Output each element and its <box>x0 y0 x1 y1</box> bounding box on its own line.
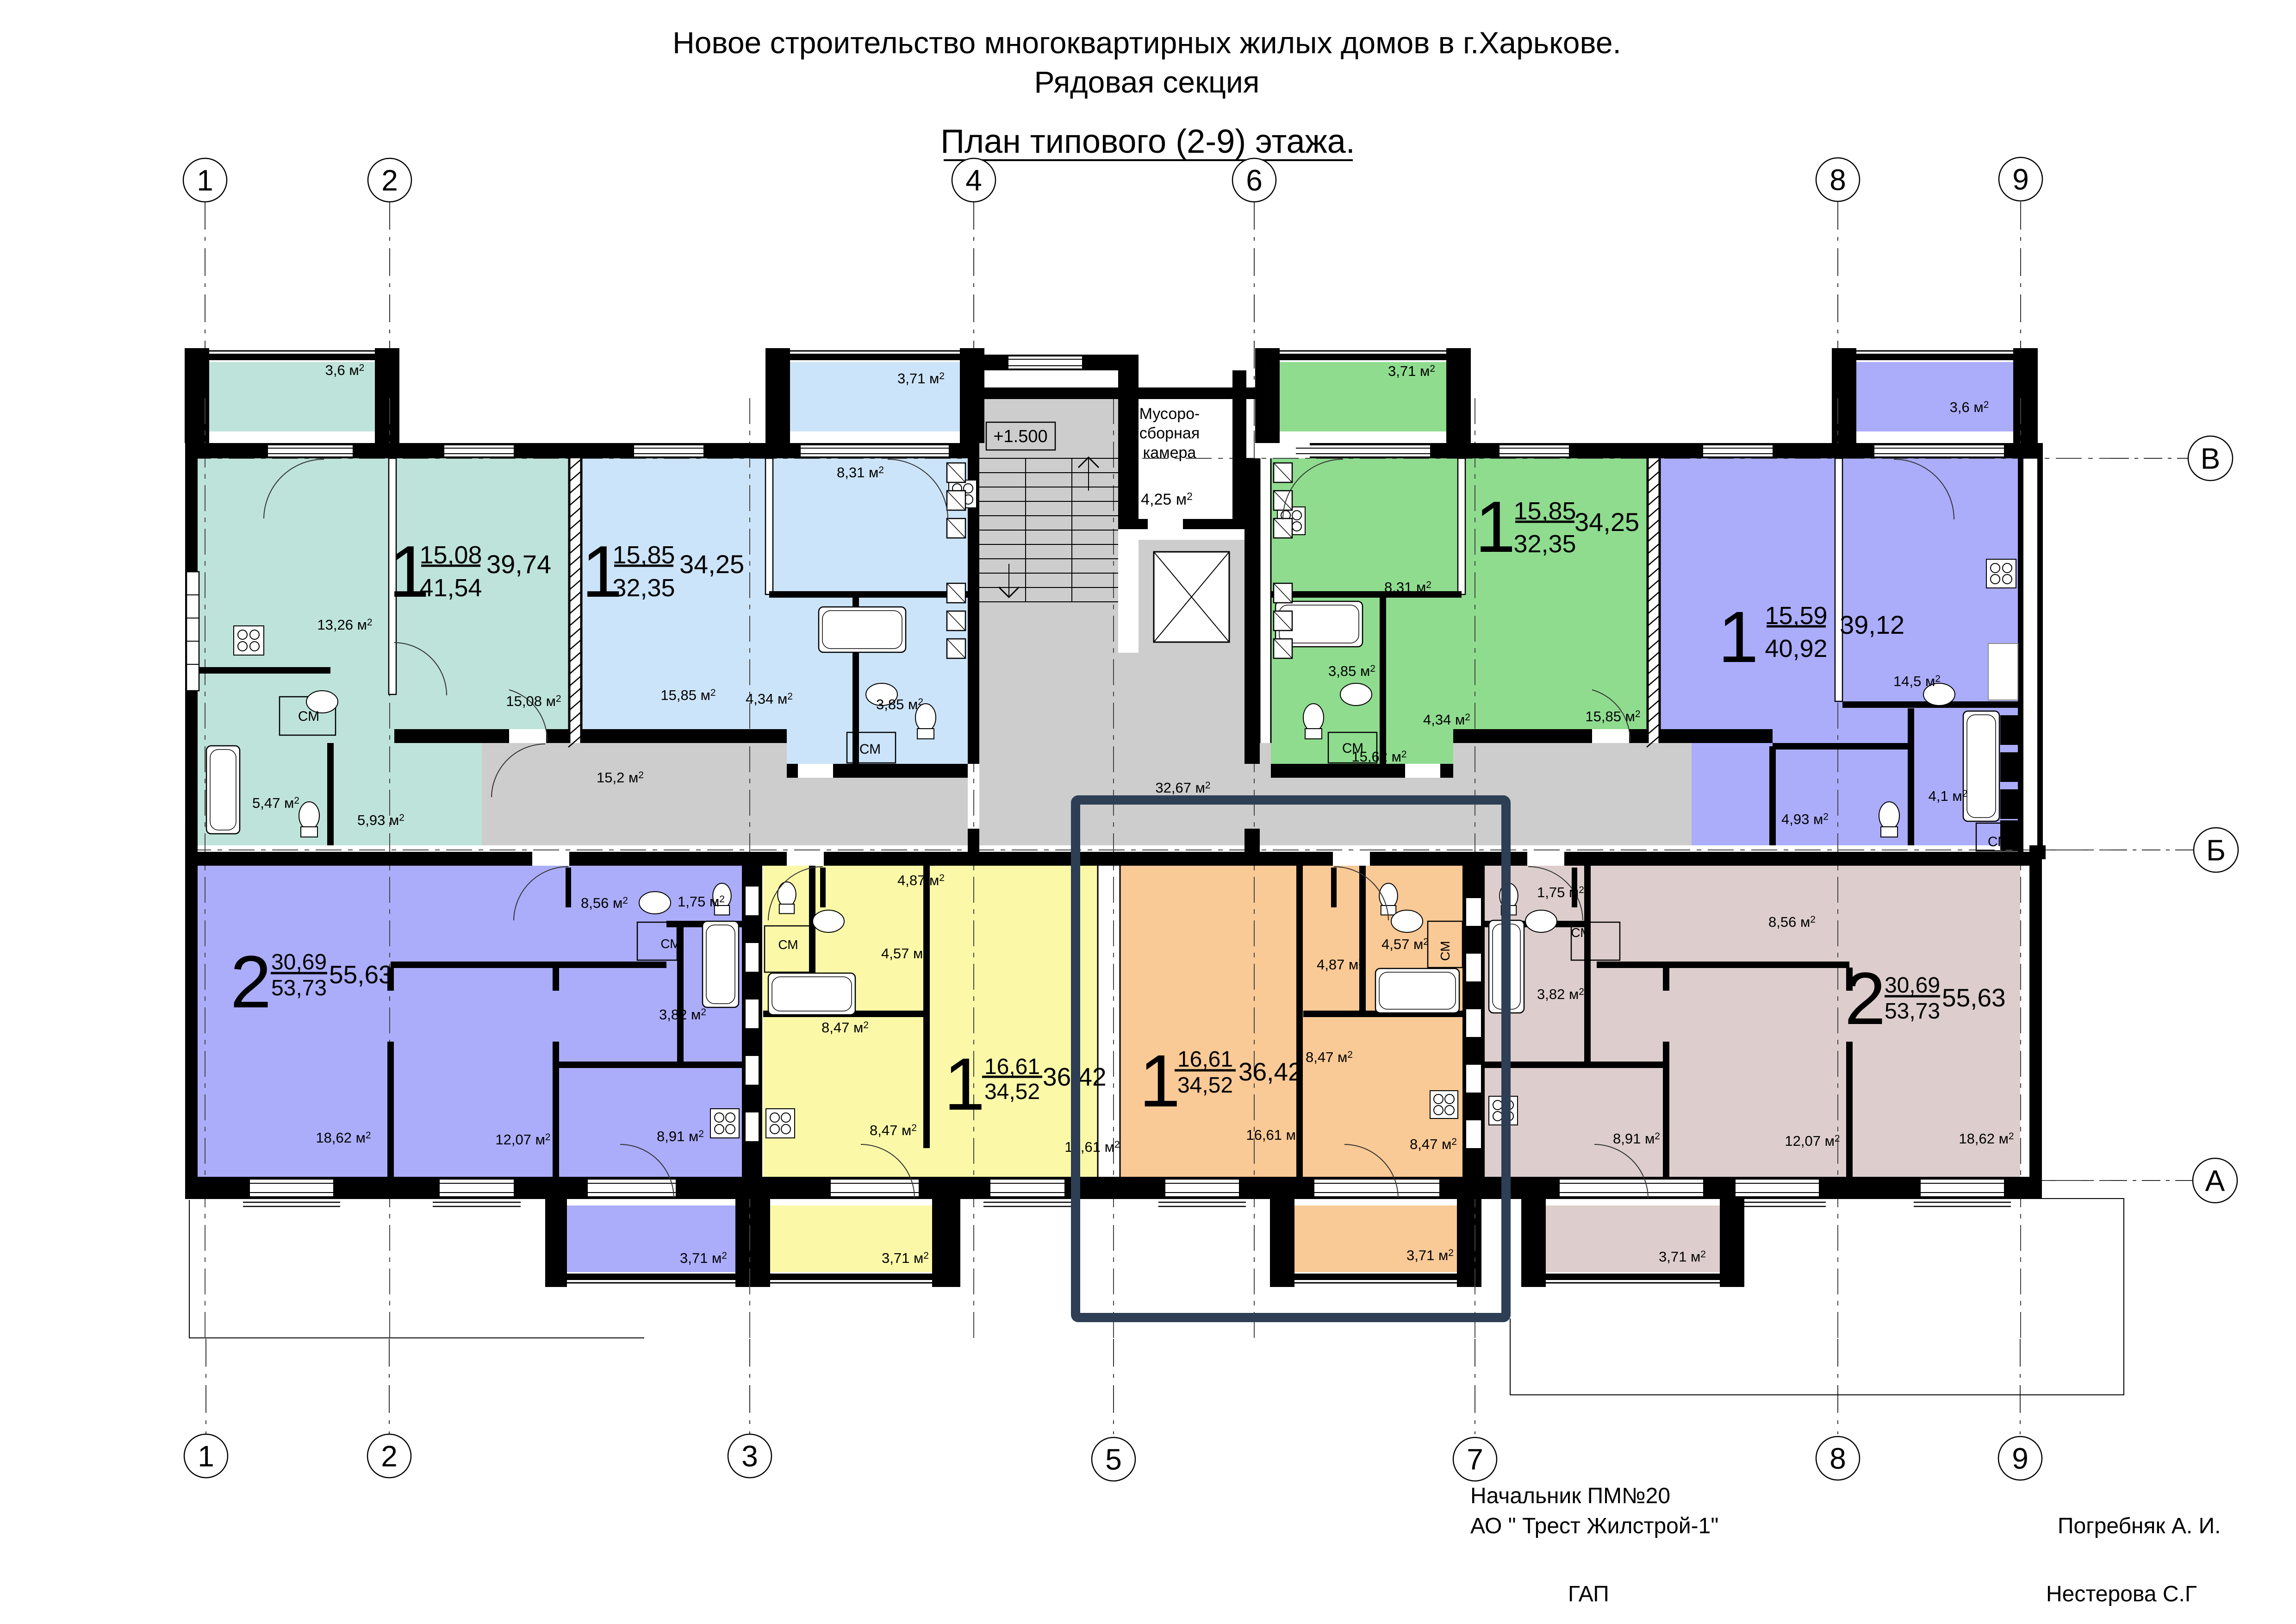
svg-text:Начальник ПМ№20: Начальник ПМ№20 <box>1470 1484 1670 1508</box>
svg-text:36,42: 36,42 <box>1238 1057 1302 1086</box>
svg-text:4,34 м2: 4,34 м2 <box>1423 712 1470 728</box>
svg-text:15,59 м2: 15,59 м2 <box>1665 728 1720 744</box>
svg-text:30,69: 30,69 <box>1885 973 1940 998</box>
svg-text:8,91 м2: 8,91 м2 <box>1613 1131 1660 1147</box>
svg-text:1,75 м2: 1,75 м2 <box>678 893 725 910</box>
svg-text:53,73: 53,73 <box>271 976 327 1000</box>
svg-text:2: 2 <box>381 1440 398 1473</box>
svg-text:3,71 м2: 3,71 м2 <box>1659 1249 1706 1265</box>
svg-text:8,56 м2: 8,56 м2 <box>581 895 628 911</box>
svg-text:Мусоро-: Мусоро- <box>1139 405 1200 423</box>
svg-text:3: 3 <box>741 1440 758 1473</box>
svg-text:СМ: СМ <box>660 937 680 951</box>
svg-text:1: 1 <box>944 1043 985 1125</box>
svg-text:1: 1 <box>198 1440 214 1473</box>
svg-text:8: 8 <box>1829 1442 1846 1475</box>
svg-text:39,74: 39,74 <box>486 550 551 579</box>
svg-text:3,71 м2: 3,71 м2 <box>897 370 945 387</box>
svg-text:2: 2 <box>230 940 272 1023</box>
svg-text:14,5 м2: 14,5 м2 <box>1893 673 1941 689</box>
svg-text:4,25 м2: 4,25 м2 <box>1141 490 1193 508</box>
svg-text:32,67 м2: 32,67 м2 <box>1155 780 1210 796</box>
svg-text:Рядовая секция: Рядовая секция <box>1034 65 1260 99</box>
svg-text:55,63: 55,63 <box>329 960 393 989</box>
svg-text:4,34 м2: 4,34 м2 <box>746 691 793 707</box>
svg-text:13,26 м2: 13,26 м2 <box>317 617 372 633</box>
svg-text:3,71 м2: 3,71 м2 <box>1388 363 1435 379</box>
svg-text:4,57 м2: 4,57 м2 <box>1381 936 1429 952</box>
svg-text:16,61: 16,61 <box>1177 1047 1233 1072</box>
svg-text:3,85 м2: 3,85 м2 <box>1328 663 1375 679</box>
svg-text:В: В <box>2201 442 2221 475</box>
svg-text:40,92: 40,92 <box>1765 635 1827 662</box>
svg-text:18,62 м2: 18,62 м2 <box>316 1130 371 1146</box>
svg-text:6: 6 <box>1246 164 1263 197</box>
svg-text:34,52: 34,52 <box>1177 1073 1233 1098</box>
svg-text:7: 7 <box>1467 1443 1483 1476</box>
svg-text:4,87 м2: 4,87 м2 <box>1317 956 1364 973</box>
svg-text:1,75 м2: 1,75 м2 <box>1537 884 1584 900</box>
svg-text:4,1 м2: 4,1 м2 <box>1929 788 1968 804</box>
svg-text:8,47 м2: 8,47 м2 <box>870 1122 917 1138</box>
svg-text:8: 8 <box>1829 163 1846 197</box>
svg-text:4: 4 <box>965 164 982 197</box>
svg-text:СМ: СМ <box>1571 925 1591 940</box>
svg-text:8,56 м2: 8,56 м2 <box>1768 914 1816 930</box>
svg-text:12,07 м2: 12,07 м2 <box>1785 1133 1840 1149</box>
svg-text:+1.500: +1.500 <box>993 427 1047 446</box>
svg-text:СМ: СМ <box>1988 834 2009 849</box>
svg-text:1: 1 <box>1139 1039 1181 1122</box>
svg-text:Новое строительство многокварт: Новое строительство многоквартирных жилы… <box>672 25 1621 60</box>
svg-text:16,61: 16,61 <box>984 1055 1040 1079</box>
svg-text:5,93 м2: 5,93 м2 <box>357 812 404 828</box>
svg-text:3,82 м2: 3,82 м2 <box>1537 986 1584 1002</box>
svg-text:34,25: 34,25 <box>679 550 744 579</box>
svg-text:8,47 м2: 8,47 м2 <box>1306 1049 1353 1065</box>
svg-text:15,85 м2: 15,85 м2 <box>660 687 716 703</box>
svg-text:4,87 м2: 4,87 м2 <box>897 872 945 888</box>
svg-text:15,62 м2: 15,62 м2 <box>1351 749 1406 765</box>
svg-text:32,35: 32,35 <box>1513 530 1576 558</box>
svg-text:2: 2 <box>381 164 398 197</box>
svg-text:СМ: СМ <box>859 742 881 757</box>
svg-text:9: 9 <box>2012 1442 2028 1475</box>
svg-text:ГАП: ГАП <box>1568 1582 1609 1606</box>
svg-text:34,25: 34,25 <box>1574 507 1639 537</box>
svg-text:3,71 м2: 3,71 м2 <box>680 1250 727 1266</box>
svg-text:53,73: 53,73 <box>1885 999 1940 1024</box>
svg-text:Нестерова С.Г: Нестерова С.Г <box>2046 1582 2197 1606</box>
svg-text:1: 1 <box>1475 487 1515 568</box>
svg-text:16,61 м2: 16,61 м2 <box>1246 1127 1301 1143</box>
svg-text:3,82 м2: 3,82 м2 <box>659 1006 706 1023</box>
svg-text:4,93 м2: 4,93 м2 <box>1781 811 1829 827</box>
svg-text:8,47 м2: 8,47 м2 <box>1410 1136 1457 1152</box>
svg-text:Погребняк А. И.: Погребняк А. И. <box>2058 1514 2221 1538</box>
svg-text:15,2 м2: 15,2 м2 <box>597 769 644 786</box>
svg-text:3,6 м2: 3,6 м2 <box>1950 399 1989 415</box>
svg-text:3,85 м2: 3,85 м2 <box>876 696 923 712</box>
svg-text:18,62 м2: 18,62 м2 <box>1959 1131 2014 1147</box>
svg-text:1: 1 <box>197 164 213 197</box>
svg-text:3,6 м2: 3,6 м2 <box>325 362 365 378</box>
svg-text:8,31 м2: 8,31 м2 <box>1384 579 1431 595</box>
svg-text:8,31 м2: 8,31 м2 <box>837 464 884 481</box>
svg-text:АО " Трест Жилстрой-1": АО " Трест Жилстрой-1" <box>1470 1514 1718 1538</box>
svg-text:сборная: сборная <box>1139 425 1200 442</box>
svg-text:8,91 м2: 8,91 м2 <box>657 1128 704 1144</box>
svg-text:34,52: 34,52 <box>984 1080 1040 1104</box>
svg-text:3,71 м2: 3,71 м2 <box>1406 1247 1454 1263</box>
svg-text:СМ: СМ <box>778 937 798 952</box>
svg-text:41,54: 41,54 <box>419 574 482 602</box>
svg-text:9: 9 <box>2012 163 2029 196</box>
svg-text:15,08 м2: 15,08 м2 <box>506 693 561 709</box>
svg-text:1: 1 <box>1718 597 1758 678</box>
svg-text:5: 5 <box>1105 1443 1122 1476</box>
svg-text:3,71 м2: 3,71 м2 <box>882 1250 929 1266</box>
svg-text:12,07 м2: 12,07 м2 <box>495 1131 550 1148</box>
svg-text:4,57 м2: 4,57 м2 <box>881 945 928 962</box>
svg-text:55,63: 55,63 <box>1942 983 2006 1012</box>
svg-text:39,12: 39,12 <box>1840 610 1904 639</box>
svg-text:А: А <box>2205 1164 2225 1198</box>
svg-text:32,35: 32,35 <box>612 574 675 602</box>
svg-text:15,85 м2: 15,85 м2 <box>1585 708 1640 725</box>
svg-text:30,69: 30,69 <box>271 950 327 974</box>
svg-text:2: 2 <box>1845 957 1886 1040</box>
svg-text:5,47 м2: 5,47 м2 <box>252 795 299 811</box>
svg-text:СМ: СМ <box>1438 941 1452 961</box>
svg-text:План типового (2-9) этажа.: План типового (2-9) этажа. <box>940 123 1355 160</box>
svg-text:8,47 м2: 8,47 м2 <box>821 1019 869 1036</box>
svg-text:СМ: СМ <box>298 709 319 724</box>
svg-text:камера: камера <box>1143 444 1196 462</box>
svg-text:Б: Б <box>2206 834 2226 867</box>
